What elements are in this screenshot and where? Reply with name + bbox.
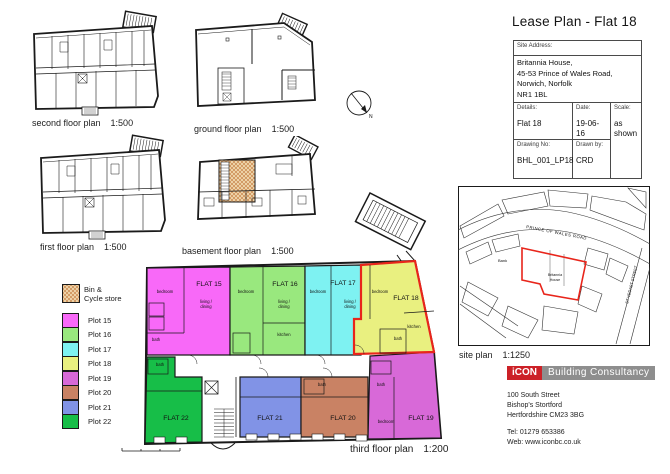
third-floor-caption: third floor plan1:200 — [350, 444, 448, 455]
legend-row-plot-22: Plot 22 — [62, 414, 111, 429]
contact-address-line: Bishop's Stortford — [507, 401, 584, 411]
page-title: Lease Plan - Flat 18 — [512, 14, 637, 29]
svg-text:FLAT 17: FLAT 17 — [330, 280, 356, 287]
svg-text:Bank: Bank — [498, 258, 507, 263]
site-address-value: Britannia House, 45-53 Prince of Wales R… — [514, 56, 641, 103]
north-arrow-icon: N — [341, 86, 377, 122]
svg-text:bath: bath — [377, 382, 386, 387]
legend-row-plot-18: Plot 18 — [62, 356, 111, 371]
legend-bin-swatch — [62, 284, 80, 303]
drawing-no-cell: Drawing No: BHL_001_LP18 — [514, 139, 573, 178]
scale-bar — [122, 448, 180, 451]
svg-text:bath: bath — [394, 336, 403, 341]
ground-floor-plan-drawing — [190, 12, 325, 122]
svg-text:House: House — [550, 278, 560, 282]
plot-22-swatch — [62, 414, 79, 429]
contact-block: 100 South Street Bishop's Stortford Hert… — [507, 391, 584, 448]
svg-text:N: N — [369, 114, 373, 120]
svg-text:dining: dining — [200, 304, 212, 309]
svg-text:dining: dining — [344, 304, 356, 309]
svg-text:FLAT 15: FLAT 15 — [196, 281, 222, 288]
title-block: Site Address: Britannia House, 45-53 Pri… — [513, 40, 642, 179]
svg-text:bedroom: bedroom — [372, 289, 389, 294]
logo-text-box: Building Consultancy — [542, 366, 655, 380]
stair-wing — [355, 193, 425, 250]
svg-text:bath: bath — [156, 362, 165, 367]
contact-web: Web: www.iconbc.co.uk — [507, 438, 584, 448]
flat-19-area — [368, 352, 441, 439]
contact-tel: Tel: 01279 653386 — [507, 428, 584, 438]
legend-row-plot-21: Plot 21 — [62, 400, 111, 415]
legend-row-plot-17: Plot 17 — [62, 342, 111, 357]
legend-row-plot-16: Plot 16 — [62, 327, 111, 342]
contact-address-line: 100 South Street — [507, 391, 584, 401]
lease-plan-sheet: second floor plan1:500 ground floor plan… — [0, 0, 670, 474]
svg-text:FLAT 20: FLAT 20 — [330, 415, 356, 422]
plot-17-swatch — [62, 342, 79, 357]
svg-text:kitchen: kitchen — [277, 332, 291, 337]
site-plan-drawing: PRINCE OF WALES ROAD ST VEDAST STREET Ba… — [458, 186, 650, 346]
svg-text:bath: bath — [318, 382, 327, 387]
svg-text:bedroom: bedroom — [157, 289, 174, 294]
contact-address-line: Hertfordshire CM23 3BG — [507, 411, 584, 421]
legend-row-plot-19: Plot 19 — [62, 371, 111, 386]
scale-cell: Scale: as shown — [611, 103, 641, 178]
ground-floor-caption: ground floor plan1:500 — [194, 124, 294, 134]
flat-20-area — [301, 377, 368, 437]
legend-row-plot-15: Plot 15 — [62, 313, 111, 328]
svg-text:FLAT 21: FLAT 21 — [257, 415, 283, 422]
second-floor-plan-drawing — [26, 8, 166, 120]
plot-15-swatch — [62, 313, 79, 328]
svg-text:FLAT 18: FLAT 18 — [393, 295, 419, 302]
site-plan-caption: site plan1:1250 — [459, 350, 530, 360]
plot-16-swatch — [62, 327, 79, 342]
details-cell: Details: Flat 18 — [514, 103, 573, 139]
second-floor-caption: second floor plan1:500 — [32, 118, 133, 128]
site-address-label: Site Address: — [517, 43, 638, 49]
logo-icon-box: iCON — [507, 366, 542, 380]
svg-text:bedroom: bedroom — [378, 419, 395, 424]
first-floor-caption: first floor plan1:500 — [40, 242, 127, 252]
svg-text:FLAT 16: FLAT 16 — [272, 281, 298, 288]
plot-21-swatch — [62, 400, 79, 415]
svg-text:Britannia: Britannia — [548, 273, 562, 277]
date-cell: Date: 19-06-16 — [573, 103, 611, 139]
svg-text:bedroom: bedroom — [310, 289, 327, 294]
svg-text:kitchen: kitchen — [407, 324, 421, 329]
legend-bin-label: Bin & Cycle store — [84, 285, 122, 303]
plot-20-swatch — [62, 385, 79, 400]
svg-text:bedroom: bedroom — [238, 289, 255, 294]
legend-row-plot-20: Plot 20 — [62, 385, 111, 400]
flat-16-area — [230, 266, 305, 355]
svg-text:FLAT 22: FLAT 22 — [163, 415, 189, 422]
third-floor-plan-drawing: FLAT 15 FLAT 16 FLAT 17 FLAT 18 FLAT 19 … — [118, 183, 468, 473]
svg-text:dining: dining — [278, 304, 290, 309]
flat-21-area — [240, 377, 301, 437]
svg-text:bath: bath — [152, 337, 161, 342]
drawn-by-cell: Drawn by: CRD — [573, 139, 611, 178]
svg-text:FLAT 19: FLAT 19 — [408, 415, 434, 422]
plot-19-swatch — [62, 371, 79, 386]
flat-17-area — [305, 265, 361, 355]
plot-18-swatch — [62, 356, 79, 371]
company-logo: iCON Building Consultancy — [507, 366, 655, 380]
